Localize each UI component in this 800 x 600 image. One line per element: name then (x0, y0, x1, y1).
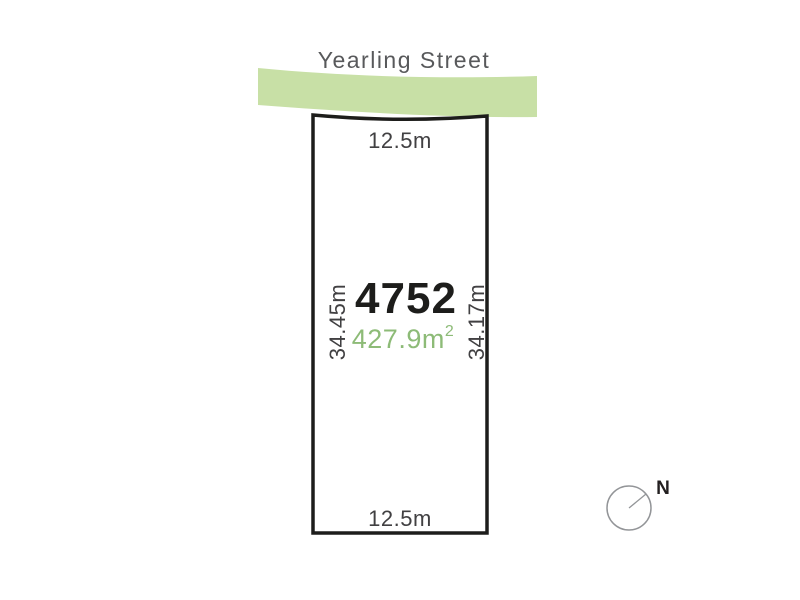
compass-needle (629, 494, 646, 508)
compass: N (607, 478, 670, 530)
lot-right-length-label: 34.17m (464, 284, 489, 360)
lot-top-width-label: 12.5m (368, 128, 432, 153)
lot-bottom-width-label: 12.5m (368, 506, 432, 531)
lot-area-value: 427.9m (352, 324, 445, 354)
street-band (258, 68, 537, 117)
lot-plan-diagram: Yearling Street 12.5m 34.45m 34.17m 4752… (0, 0, 800, 600)
lot-area-superscript: 2 (445, 323, 454, 340)
lot-area-label: 427.9m2 (352, 323, 454, 354)
compass-north-label: N (656, 478, 670, 499)
lot-left-length-label: 34.45m (325, 284, 350, 360)
street-name-label: Yearling Street (318, 47, 491, 73)
lot-plan-canvas: Yearling Street 12.5m 34.45m 34.17m 4752… (0, 0, 800, 600)
lot-number-label: 4752 (355, 274, 457, 323)
